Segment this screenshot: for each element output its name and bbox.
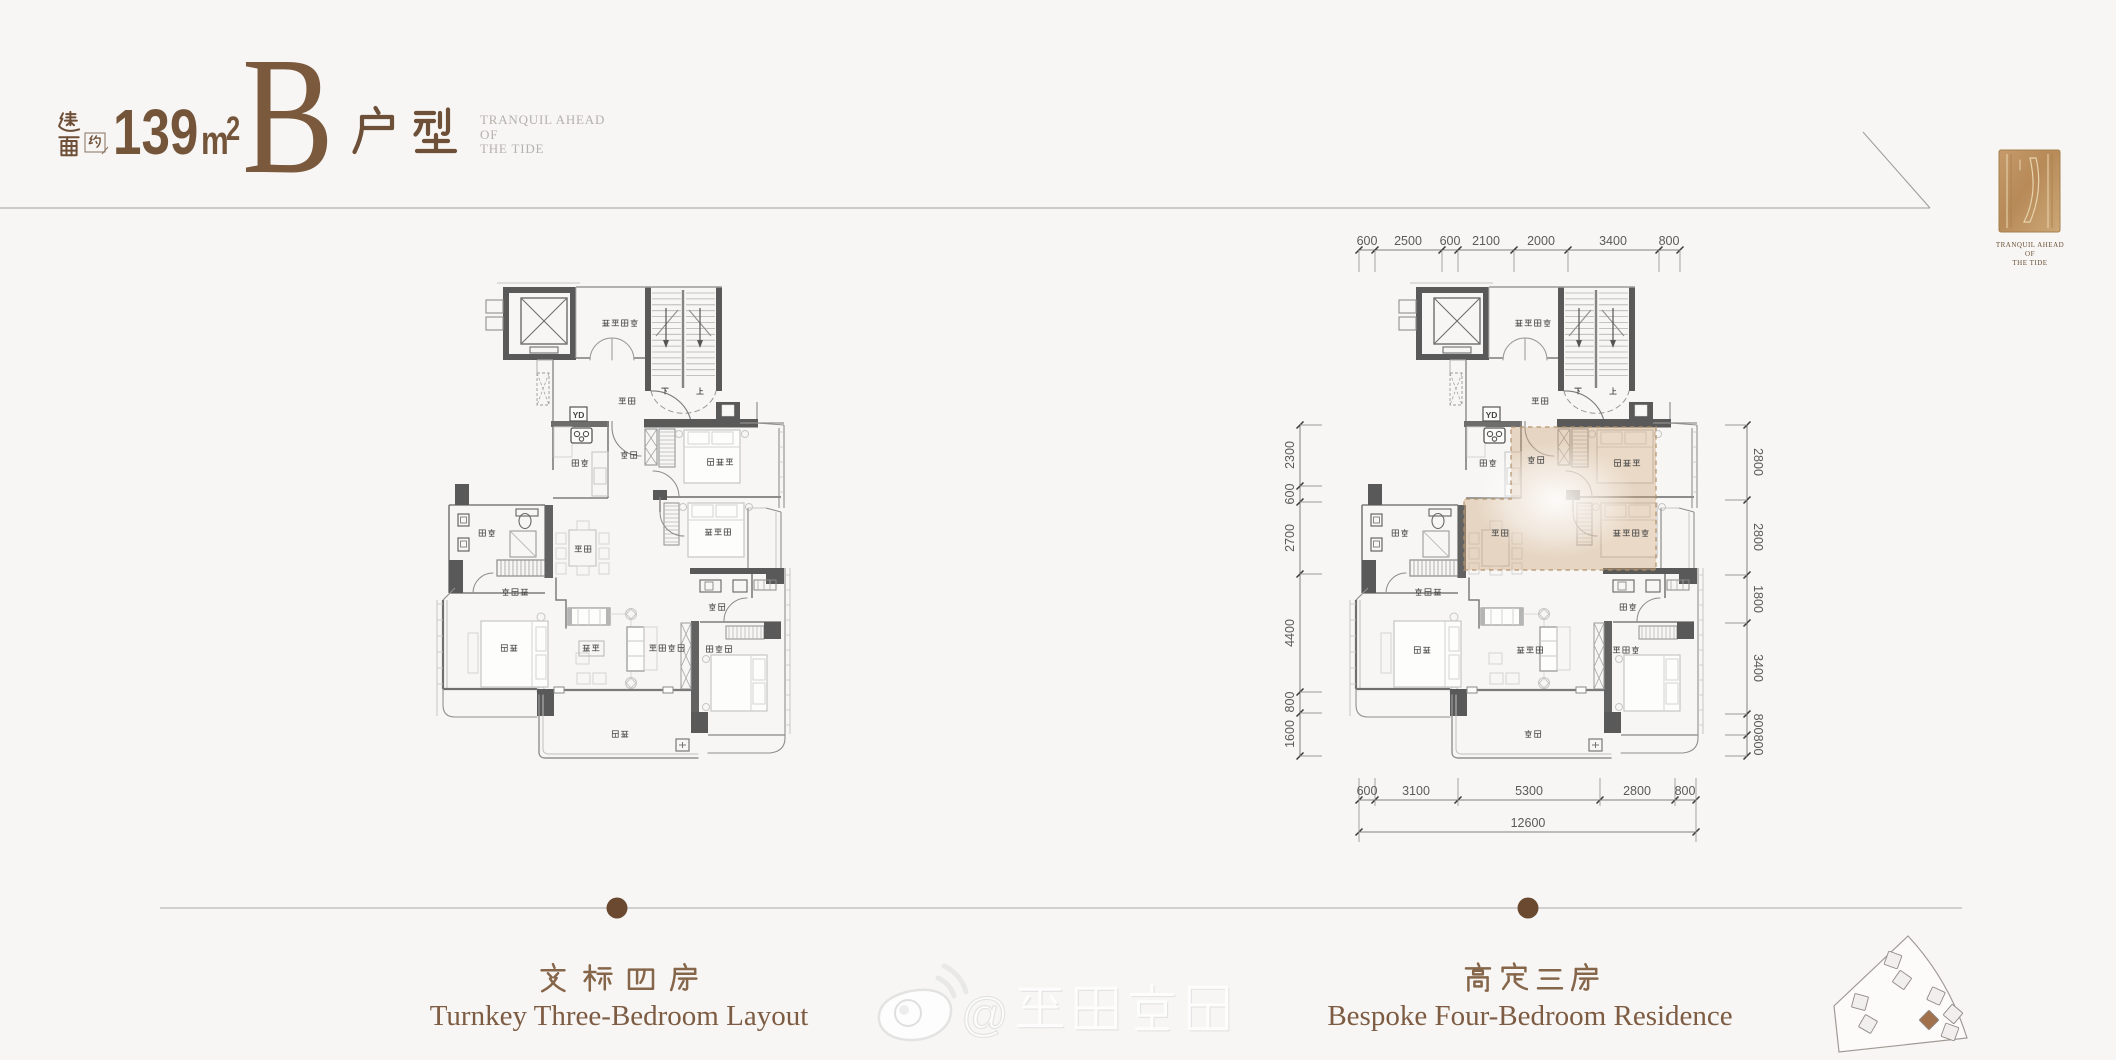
svg-text:2800: 2800: [1751, 523, 1765, 551]
svg-text:800: 800: [1659, 234, 1680, 248]
svg-text:3100: 3100: [1402, 784, 1430, 798]
svg-text:600: 600: [1357, 234, 1378, 248]
svg-text:3400: 3400: [1599, 234, 1627, 248]
svg-text:800: 800: [1283, 692, 1297, 713]
svg-text:YD: YD: [573, 410, 585, 420]
svg-text:800: 800: [1751, 735, 1765, 756]
svg-text:2800: 2800: [1623, 784, 1651, 798]
svg-text:2100: 2100: [1472, 234, 1500, 248]
svg-text:139: 139: [113, 98, 198, 169]
svg-text:2300: 2300: [1283, 441, 1297, 469]
svg-text:2: 2: [226, 111, 240, 148]
svg-text:Turnkey Three-Bedroom Layout: Turnkey Three-Bedroom Layout: [430, 1000, 809, 1032]
svg-text:THE TIDE: THE TIDE: [480, 141, 544, 156]
svg-text:600: 600: [1283, 484, 1297, 505]
svg-text:@: @: [961, 988, 1009, 1041]
svg-text:1600: 1600: [1283, 720, 1297, 748]
svg-text:4400: 4400: [1283, 619, 1297, 647]
svg-text:2500: 2500: [1394, 234, 1422, 248]
svg-text:B: B: [242, 23, 334, 209]
svg-text:2000: 2000: [1527, 234, 1555, 248]
svg-text:OF: OF: [2025, 250, 2035, 258]
svg-text:2700: 2700: [1283, 524, 1297, 552]
svg-text:600: 600: [1357, 784, 1378, 798]
svg-text:3400: 3400: [1751, 654, 1765, 682]
svg-text:m: m: [201, 118, 229, 163]
svg-text:5300: 5300: [1515, 784, 1543, 798]
svg-text:TRANQUIL AHEAD: TRANQUIL AHEAD: [480, 112, 605, 127]
svg-text:YD: YD: [1486, 410, 1498, 420]
svg-text:800: 800: [1675, 784, 1696, 798]
svg-text:1800: 1800: [1751, 585, 1765, 613]
svg-text:600: 600: [1440, 234, 1461, 248]
svg-text:Bespoke Four-Bedroom Residence: Bespoke Four-Bedroom Residence: [1327, 1000, 1732, 1032]
svg-text:THE TIDE: THE TIDE: [2012, 259, 2047, 267]
svg-text:TRANQUIL AHEAD: TRANQUIL AHEAD: [1996, 241, 2064, 249]
svg-text:12600: 12600: [1511, 816, 1546, 830]
svg-text:800: 800: [1751, 714, 1765, 735]
svg-text:2800: 2800: [1751, 448, 1765, 476]
svg-text:OF: OF: [480, 127, 498, 142]
